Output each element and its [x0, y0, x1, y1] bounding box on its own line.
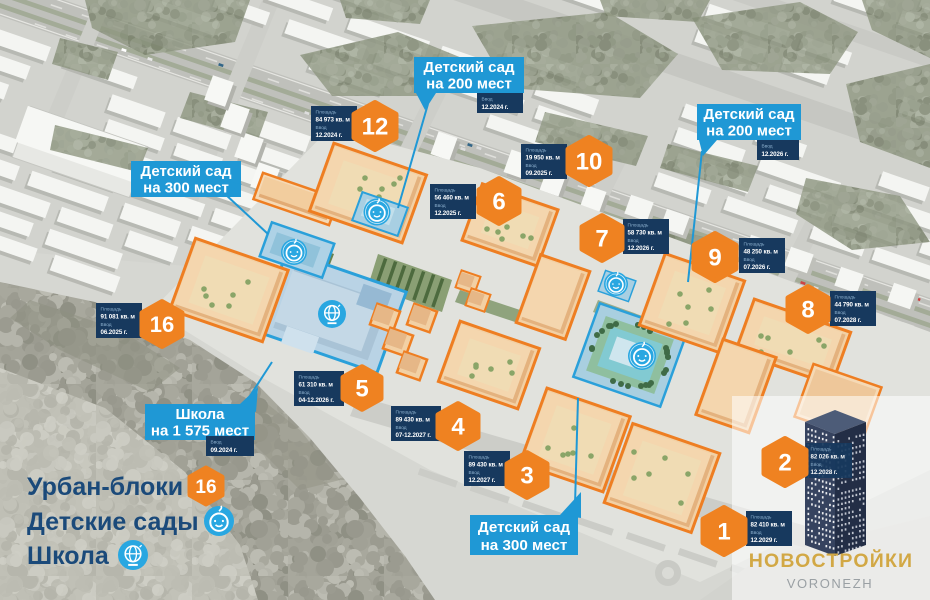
svg-text:Площадь: Площадь: [811, 447, 832, 453]
svg-text:НОВОСТРОЙКИ: НОВОСТРОЙКИ: [749, 548, 914, 572]
svg-text:91 081 кв. м: 91 081 кв. м: [101, 314, 136, 321]
svg-text:Школа: Школа: [175, 406, 225, 423]
svg-text:Ввод: Ввод: [211, 440, 222, 446]
svg-text:12.2024 г.: 12.2024 г.: [482, 104, 509, 111]
svg-text:Ввод: Ввод: [299, 390, 310, 396]
svg-text:Площадь: Площадь: [469, 455, 490, 461]
svg-text:10: 10: [576, 149, 603, 176]
svg-text:8: 8: [801, 297, 814, 324]
svg-text:Ввод: Ввод: [751, 530, 762, 536]
svg-text:89 430 кв. м: 89 430 кв. м: [469, 462, 504, 469]
svg-text:Площадь: Площадь: [435, 188, 456, 194]
svg-text:3: 3: [520, 463, 533, 490]
svg-text:Детский сад: Детский сад: [140, 163, 231, 180]
svg-text:06.2025 г.: 06.2025 г.: [101, 329, 128, 336]
svg-text:5: 5: [355, 376, 368, 403]
svg-text:Площадь: Площадь: [835, 295, 856, 301]
svg-text:82 410 кв. м: 82 410 кв. м: [751, 522, 786, 529]
svg-text:07.2028 г.: 07.2028 г.: [835, 317, 862, 324]
svg-text:на 300 мест: на 300 мест: [143, 180, 229, 197]
svg-text:1: 1: [717, 519, 730, 546]
svg-text:Ввод: Ввод: [396, 425, 407, 431]
svg-text:Ввод: Ввод: [835, 310, 846, 316]
svg-text:Площадь: Площадь: [751, 515, 772, 521]
svg-text:48 250 кв. м: 48 250 кв. м: [744, 249, 779, 256]
svg-text:Детские сады: Детские сады: [27, 508, 199, 536]
svg-text:Ввод: Ввод: [628, 238, 639, 244]
svg-text:61 310 кв. м: 61 310 кв. м: [299, 382, 334, 389]
svg-text:Ввод: Ввод: [101, 322, 112, 328]
svg-text:Ввод: Ввод: [526, 163, 537, 169]
svg-text:Ввод: Ввод: [744, 257, 755, 263]
svg-text:Ввод: Ввод: [482, 97, 493, 103]
svg-text:7: 7: [595, 226, 608, 253]
svg-text:4: 4: [451, 414, 465, 441]
svg-text:12.2026 г.: 12.2026 г.: [628, 245, 655, 252]
svg-text:44 790 кв. м: 44 790 кв. м: [835, 302, 870, 309]
svg-text:12.2024 г.: 12.2024 г.: [316, 132, 343, 139]
svg-text:на 200 мест: на 200 мест: [706, 123, 792, 140]
svg-text:58 730 кв. м: 58 730 кв. м: [628, 230, 663, 237]
svg-text:04-12.2026 г.: 04-12.2026 г.: [299, 397, 335, 404]
svg-text:89 430 кв. м: 89 430 кв. м: [396, 417, 431, 424]
svg-text:VORONEZH: VORONEZH: [787, 576, 873, 591]
svg-text:16: 16: [150, 312, 174, 337]
svg-text:Ввод: Ввод: [469, 470, 480, 476]
svg-text:Площадь: Площадь: [526, 148, 547, 154]
svg-text:12.2029 г.: 12.2029 г.: [751, 537, 778, 544]
svg-text:2: 2: [778, 450, 791, 477]
svg-text:12.2026 г.: 12.2026 г.: [762, 151, 789, 158]
svg-text:12.2025 г.: 12.2025 г.: [435, 210, 462, 217]
svg-text:Ввод: Ввод: [316, 125, 327, 131]
svg-text:Ввод: Ввод: [762, 144, 773, 150]
svg-text:09.2025 г.: 09.2025 г.: [526, 170, 553, 177]
svg-text:84 973 кв. м: 84 973 кв. м: [316, 117, 351, 124]
svg-text:82 026 кв. м: 82 026 кв. м: [811, 454, 846, 461]
svg-text:Школа: Школа: [27, 542, 110, 570]
svg-text:07.2026 г.: 07.2026 г.: [744, 264, 771, 271]
svg-text:12.2027 г.: 12.2027 г.: [469, 477, 496, 484]
svg-text:Детский сад: Детский сад: [423, 59, 514, 76]
svg-text:Площадь: Площадь: [299, 375, 320, 381]
svg-text:Площадь: Площадь: [628, 223, 649, 229]
svg-text:Ввод: Ввод: [811, 462, 822, 468]
svg-text:Площадь: Площадь: [744, 242, 765, 248]
svg-text:Площадь: Площадь: [316, 110, 337, 116]
svg-text:9: 9: [708, 245, 721, 272]
svg-text:16: 16: [195, 477, 216, 498]
svg-text:12.2028 г.: 12.2028 г.: [811, 469, 838, 476]
svg-text:07-12.2027 г.: 07-12.2027 г.: [396, 432, 432, 439]
svg-text:09.2024 г.: 09.2024 г.: [211, 447, 238, 454]
svg-text:6: 6: [492, 189, 505, 216]
svg-text:19 950 кв. м: 19 950 кв. м: [526, 155, 561, 162]
svg-text:на 300 мест: на 300 мест: [481, 537, 568, 554]
svg-text:56 460 кв. м: 56 460 кв. м: [435, 195, 470, 202]
svg-text:Урбан-блоки: Урбан-блоки: [27, 473, 183, 501]
svg-text:Площадь: Площадь: [101, 307, 122, 313]
svg-text:Детский сад: Детский сад: [703, 106, 794, 123]
svg-text:Ввод: Ввод: [435, 203, 446, 209]
svg-text:Площадь: Площадь: [396, 410, 417, 416]
svg-text:12: 12: [362, 114, 389, 141]
svg-text:на 200 мест: на 200 мест: [426, 76, 512, 93]
svg-text:Детский сад: Детский сад: [478, 519, 571, 536]
